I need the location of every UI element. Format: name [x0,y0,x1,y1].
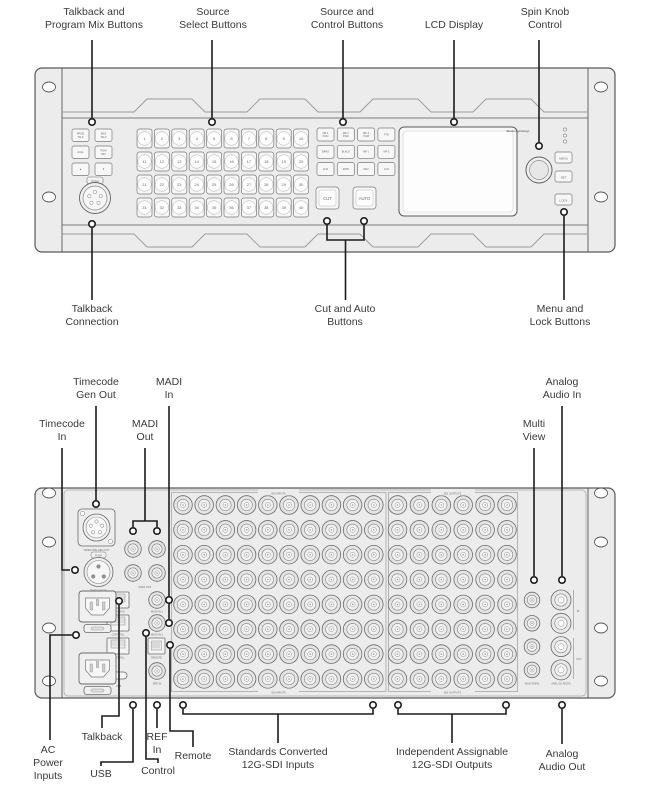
analog-audio-label: ANALOG AUDIO [551,682,571,686]
sdi-output-bnc [476,521,495,540]
sdi-input-bnc [301,670,320,689]
control-button: ME 3PGM [358,128,375,141]
sdi-input-bnc [259,670,278,689]
svg-text:ME 3PGM: ME 3PGM [363,132,369,138]
svg-text:38: 38 [264,205,269,210]
sdi-input-bnc [343,521,362,540]
sdi-input-bnc [322,521,341,540]
svg-text:16: 16 [229,159,234,164]
multiview-bnc [524,616,540,632]
svg-text:LOCK: LOCK [559,198,567,202]
source-button: 7 [241,129,256,148]
sdi-input-bnc [301,595,320,614]
sdi-input-bnc [216,545,235,564]
sdi-output-bnc [498,570,517,589]
analog-audio-jack [551,613,571,633]
sdi-input-bnc [280,545,299,564]
svg-text:18: 18 [264,159,269,164]
source-button: 27 [241,175,256,194]
set-button: SET [555,171,572,182]
sdi-input-bnc [237,645,256,664]
sdi-output-bnc [432,595,451,614]
sdi-output-bnc [454,595,473,614]
svg-text:19: 19 [281,159,286,164]
svg-text:AUX: AUX [323,168,328,171]
remote-port-label: REMOTE [151,656,162,660]
source-button: 23 [172,175,187,194]
source-button: 10 [294,129,309,148]
control-button: FTB [378,128,395,141]
sdi-input-bnc [301,570,320,589]
source-button: 1 [137,129,152,148]
source-button: 18 [259,152,274,171]
svg-text:TIMECODE GEN OUT: TIMECODE GEN OUT [83,548,110,552]
svg-text:ENGTALK: ENGTALK [100,132,107,139]
control-button: CLN [378,163,395,176]
ref-in-bnc [149,663,166,680]
sdi-outputs-label-bottom: SDI OUTPUTS [444,691,462,695]
svg-text:21: 21 [142,182,147,187]
svg-text:MVW: MVW [343,168,350,171]
source-button: 28 [259,175,274,194]
sdi-input-bnc [195,521,214,540]
control-button: MAC [358,163,375,176]
source-button: 32 [154,198,169,217]
sdi-input-bnc [259,521,278,540]
sdi-inputs-label-bottom: SDI INPUTS [271,691,286,695]
sdi-input-bnc [259,620,278,639]
madi-in-2-label: MADI IN 2 [151,633,164,637]
logo-dots-icon [563,128,566,143]
sdi-input-bnc [174,521,193,540]
sdi-input-bnc [322,645,341,664]
source-button: 15 [207,152,222,171]
sdi-input-bnc [322,570,341,589]
sdi-output-bnc [454,521,473,540]
svg-text:▼: ▼ [102,168,105,171]
sdi-input-bnc [195,595,214,614]
audio-out-group-label: OUT [576,657,582,661]
svg-text:MAC: MAC [363,168,369,171]
source-button: 31 [137,198,152,217]
sdi-output-bnc [388,496,407,515]
sdi-output-bnc [410,595,429,614]
cut-button: CUT [316,187,339,209]
svg-text:20: 20 [299,159,304,164]
madi-in-bnc [149,592,166,609]
svg-text:25: 25 [212,182,217,187]
sdi-output-bnc [432,521,451,540]
sdi-output-bnc [410,521,429,540]
sdi-outputs-label-top: SDI OUTPUTS [444,492,462,496]
source-button: 35 [207,198,222,217]
svg-text:ME 2PGM: ME 2PGM [343,132,349,138]
sdi-output-bnc [498,645,517,664]
sdi-input-bnc [365,620,384,639]
sdi-input-bnc [216,620,235,639]
sdi-input-bnc [237,620,256,639]
svg-text:PGMMIX: PGMMIX [101,149,107,156]
source-button: 3 [172,129,187,148]
svg-text:AUTO: AUTO [359,196,371,201]
sdi-input-bnc [259,645,278,664]
svg-text:27: 27 [247,182,252,187]
source-button: 39 [276,198,291,217]
sdi-input-bnc [343,595,362,614]
source-button: 13 [172,152,187,171]
svg-text:36: 36 [229,205,234,210]
sdi-output-bnc [410,545,429,564]
svg-text:CLN: CLN [384,168,389,171]
lcd-display [399,127,517,216]
sdi-output-bnc [476,570,495,589]
timecode-gen-out-xlr: TIMECODE GEN OUT [78,509,115,552]
svg-text:17: 17 [247,159,252,164]
sdi-input-bnc [365,521,384,540]
sdi-input-bnc [216,496,235,515]
multiview-bnc [524,662,540,678]
sdi-output-bnc [410,645,429,664]
madi-out-bnc [125,541,142,558]
sdi-output-bnc [388,570,407,589]
sdi-input-bnc [216,521,235,540]
sdi-input-bnc [301,496,320,515]
sdi-output-bnc [410,670,429,689]
svg-text:CUT: CUT [323,196,332,201]
sdi-input-bnc [343,670,362,689]
multiview-bnc [524,639,540,655]
sdi-input-bnc [259,595,278,614]
sdi-input-bnc [174,496,193,515]
talkback-button: CALL [72,146,89,159]
sdi-output-bnc [432,620,451,639]
control-button: BLACK [337,145,354,158]
svg-text:29: 29 [281,182,286,187]
sdi-input-bnc [216,670,235,689]
svg-text:26: 26 [229,182,234,187]
svg-text:▲: ▲ [79,168,82,171]
svg-text:SET: SET [561,175,567,179]
sdi-input-bnc [343,545,362,564]
madi-in-1-label: MADI IN 1 [151,610,164,614]
sdi-input-bnc [280,645,299,664]
svg-text:34: 34 [194,205,199,210]
sdi-output-bnc [410,570,429,589]
svg-text:BARS: BARS [322,151,329,154]
sdi-output-bnc [432,645,451,664]
sdi-inputs-label-top: SDI INPUTS [271,492,286,496]
sdi-input-bnc [195,545,214,564]
multiview-label: MULTIVIEW [525,682,540,686]
svg-text:ME 1PGM: ME 1PGM [323,132,329,138]
svg-text:MP 1: MP 1 [363,151,369,154]
svg-text:23: 23 [177,182,182,187]
sdi-input-bnc [195,570,214,589]
source-button: 24 [189,175,204,194]
sdi-input-bnc [365,496,384,515]
svg-text:37: 37 [247,205,252,210]
source-button: 16 [224,152,239,171]
source-button: 26 [224,175,239,194]
svg-text:10: 10 [299,136,304,141]
control-button: MP 1 [358,145,375,158]
madi-in-bnc [149,615,166,632]
madi-out-bnc [149,541,166,558]
diagram-page: Talkback and Program Mix Buttons Source … [0,0,650,794]
sdi-input-bnc [365,595,384,614]
source-button: 30 [294,175,309,194]
svg-text:40: 40 [299,205,304,210]
source-button: 6 [224,129,239,148]
svg-text:39: 39 [281,205,286,210]
remote-port [148,638,165,654]
madi-out-bnc [149,565,166,582]
source-button: 22 [154,175,169,194]
sdi-input-bnc [322,496,341,515]
sdi-input-bnc [259,496,278,515]
source-button: 34 [189,198,204,217]
svg-text:BLACK: BLACK [342,151,351,154]
brand-logo: Blackmagicdesign [507,129,530,133]
source-button: 11 [137,152,152,171]
svg-text:PRODTALK: PRODTALK [77,132,85,139]
sdi-input-bnc [343,620,362,639]
audio-in-group-label: IN [577,609,580,613]
svg-text:MENU: MENU [559,156,568,160]
sdi-output-bnc [498,595,517,614]
sdi-input-bnc [237,545,256,564]
sdi-input-bnc [259,570,278,589]
svg-text:31: 31 [142,205,147,210]
sdi-input-bnc [343,570,362,589]
sdi-input-bnc [216,595,235,614]
source-button: 4 [189,129,204,148]
sdi-input-bnc [365,670,384,689]
sdi-output-bnc [476,496,495,515]
sdi-output-bnc [388,645,407,664]
sdi-output-bnc [454,545,473,564]
sdi-input-bnc [365,645,384,664]
talkback-button: ▲ [72,163,89,176]
sdi-output-bnc [454,570,473,589]
sdi-output-bnc [476,545,495,564]
auto-button: AUTO [353,187,376,209]
svg-text:FTB: FTB [384,133,389,136]
sdi-input-bnc [343,496,362,515]
sdi-output-bnc [476,670,495,689]
sdi-output-bnc [454,496,473,515]
sdi-output-bnc [498,521,517,540]
svg-text:MP 2: MP 2 [384,151,390,154]
sdi-output-bnc [432,496,451,515]
source-button: 17 [241,152,256,171]
svg-text:35: 35 [212,205,217,210]
sdi-input-bnc [174,670,193,689]
sdi-output-bnc [454,670,473,689]
svg-text:22: 22 [160,182,165,187]
lock-button: LOCK [555,194,572,205]
source-button: 38 [259,198,274,217]
sdi-input-bnc [195,620,214,639]
sdi-output-bnc [432,545,451,564]
ref-in-bnc [149,663,166,680]
ac-power-inlet [79,653,116,695]
sdi-output-bnc [454,620,473,639]
sdi-input-bnc [216,570,235,589]
sdi-input-bnc [343,645,362,664]
sdi-input-bnc [280,620,299,639]
source-button: 20 [294,152,309,171]
control-button: MVW [337,163,354,176]
spin-knob [526,157,552,183]
sdi-output-bnc [454,645,473,664]
control-button: ME 2PGM [337,128,354,141]
sdi-output-bnc [388,521,407,540]
sdi-output-bnc [498,670,517,689]
sdi-input-bnc [301,620,320,639]
sdi-input-bnc [237,521,256,540]
source-button: 36 [224,198,239,217]
sdi-input-bnc [301,521,320,540]
sdi-input-bnc [280,496,299,515]
menu-button: MENU [555,152,572,163]
svg-text:32: 32 [160,205,165,210]
rear-panel: TIMECODE GEN OUT PUSH TIMECODE IN MADI O… [35,488,615,698]
sdi-input-bnc [280,670,299,689]
control-button: ME 1PGM [317,128,334,141]
source-button: 2 [154,129,169,148]
sdi-input-bnc [174,595,193,614]
svg-text:PUSH: PUSH [95,553,102,557]
sdi-output-bnc [410,620,429,639]
ac-power-inlet [79,591,116,633]
source-button: 40 [294,198,309,217]
sdi-input-bnc [322,545,341,564]
sdi-input-bnc [280,521,299,540]
svg-text:14: 14 [194,159,199,164]
source-button: 29 [276,175,291,194]
sdi-input-bnc [216,645,235,664]
svg-text:12: 12 [160,159,165,164]
sdi-output-bnc [476,620,495,639]
ref-in-label: REF IN [153,682,162,686]
sdi-input-bnc [195,645,214,664]
sdi-output-bnc [498,620,517,639]
multiview-bnc [524,592,540,608]
source-button: 14 [189,152,204,171]
analog-audio-jack [551,637,571,657]
talkback-button: ▼ [95,163,112,176]
control-rj45-port [107,638,129,654]
madi-out-bnc [125,565,142,582]
sdi-input-bnc [237,570,256,589]
svg-text:24: 24 [194,182,199,187]
source-button: 19 [276,152,291,171]
sdi-input-bnc [174,620,193,639]
sdi-input-bnc [174,645,193,664]
sdi-input-bnc [280,595,299,614]
source-button: 12 [154,152,169,171]
sdi-input-bnc [174,545,193,564]
svg-text:CALL: CALL [77,150,84,154]
talkback-button: PGMMIX [95,146,112,159]
sdi-input-bnc [365,545,384,564]
control-button: BARS [317,145,334,158]
sdi-input-bnc [322,595,341,614]
source-button: 25 [207,175,222,194]
control-button: MP 2 [378,145,395,158]
sdi-input-bnc [301,645,320,664]
sdi-input-bnc [237,496,256,515]
sdi-output-bnc [498,496,517,515]
svg-text:15: 15 [212,159,217,164]
sdi-output-bnc [498,545,517,564]
svg-text:30: 30 [299,182,304,187]
sdi-output-bnc [476,595,495,614]
sdi-output-bnc [410,496,429,515]
source-button: 33 [172,198,187,217]
sdi-input-bnc [195,496,214,515]
sdi-output-bnc [432,570,451,589]
source-button: 21 [137,175,152,194]
source-button: 8 [259,129,274,148]
talkback-button: PRODTALK [72,129,89,142]
sdi-output-bnc [388,595,407,614]
sdi-input-bnc [237,595,256,614]
sdi-output-bnc [388,620,407,639]
sdi-input-bnc [174,570,193,589]
sdi-output-bnc [476,645,495,664]
sdi-input-bnc [237,670,256,689]
sdi-input-bnc [259,545,278,564]
source-button: 5 [207,129,222,148]
sdi-output-bnc [388,545,407,564]
sdi-input-bnc [322,670,341,689]
talkback-button: ENGTALK [95,129,112,142]
sdi-output-bnc [432,670,451,689]
control-button: AUX [317,163,334,176]
madi-out-label: MADI OUT [139,585,152,589]
sdi-input-bnc [322,620,341,639]
sdi-input-bnc [195,670,214,689]
svg-text:33: 33 [177,205,182,210]
svg-text:13: 13 [177,159,182,164]
analog-audio-jack [551,660,571,680]
source-button: 9 [276,129,291,148]
sdi-input-bnc [365,570,384,589]
sdi-input-bnc [280,570,299,589]
sdi-output-bnc [388,670,407,689]
svg-text:28: 28 [264,182,269,187]
analog-audio-jack [551,590,571,610]
sdi-input-bnc [301,545,320,564]
source-button: 37 [241,198,256,217]
